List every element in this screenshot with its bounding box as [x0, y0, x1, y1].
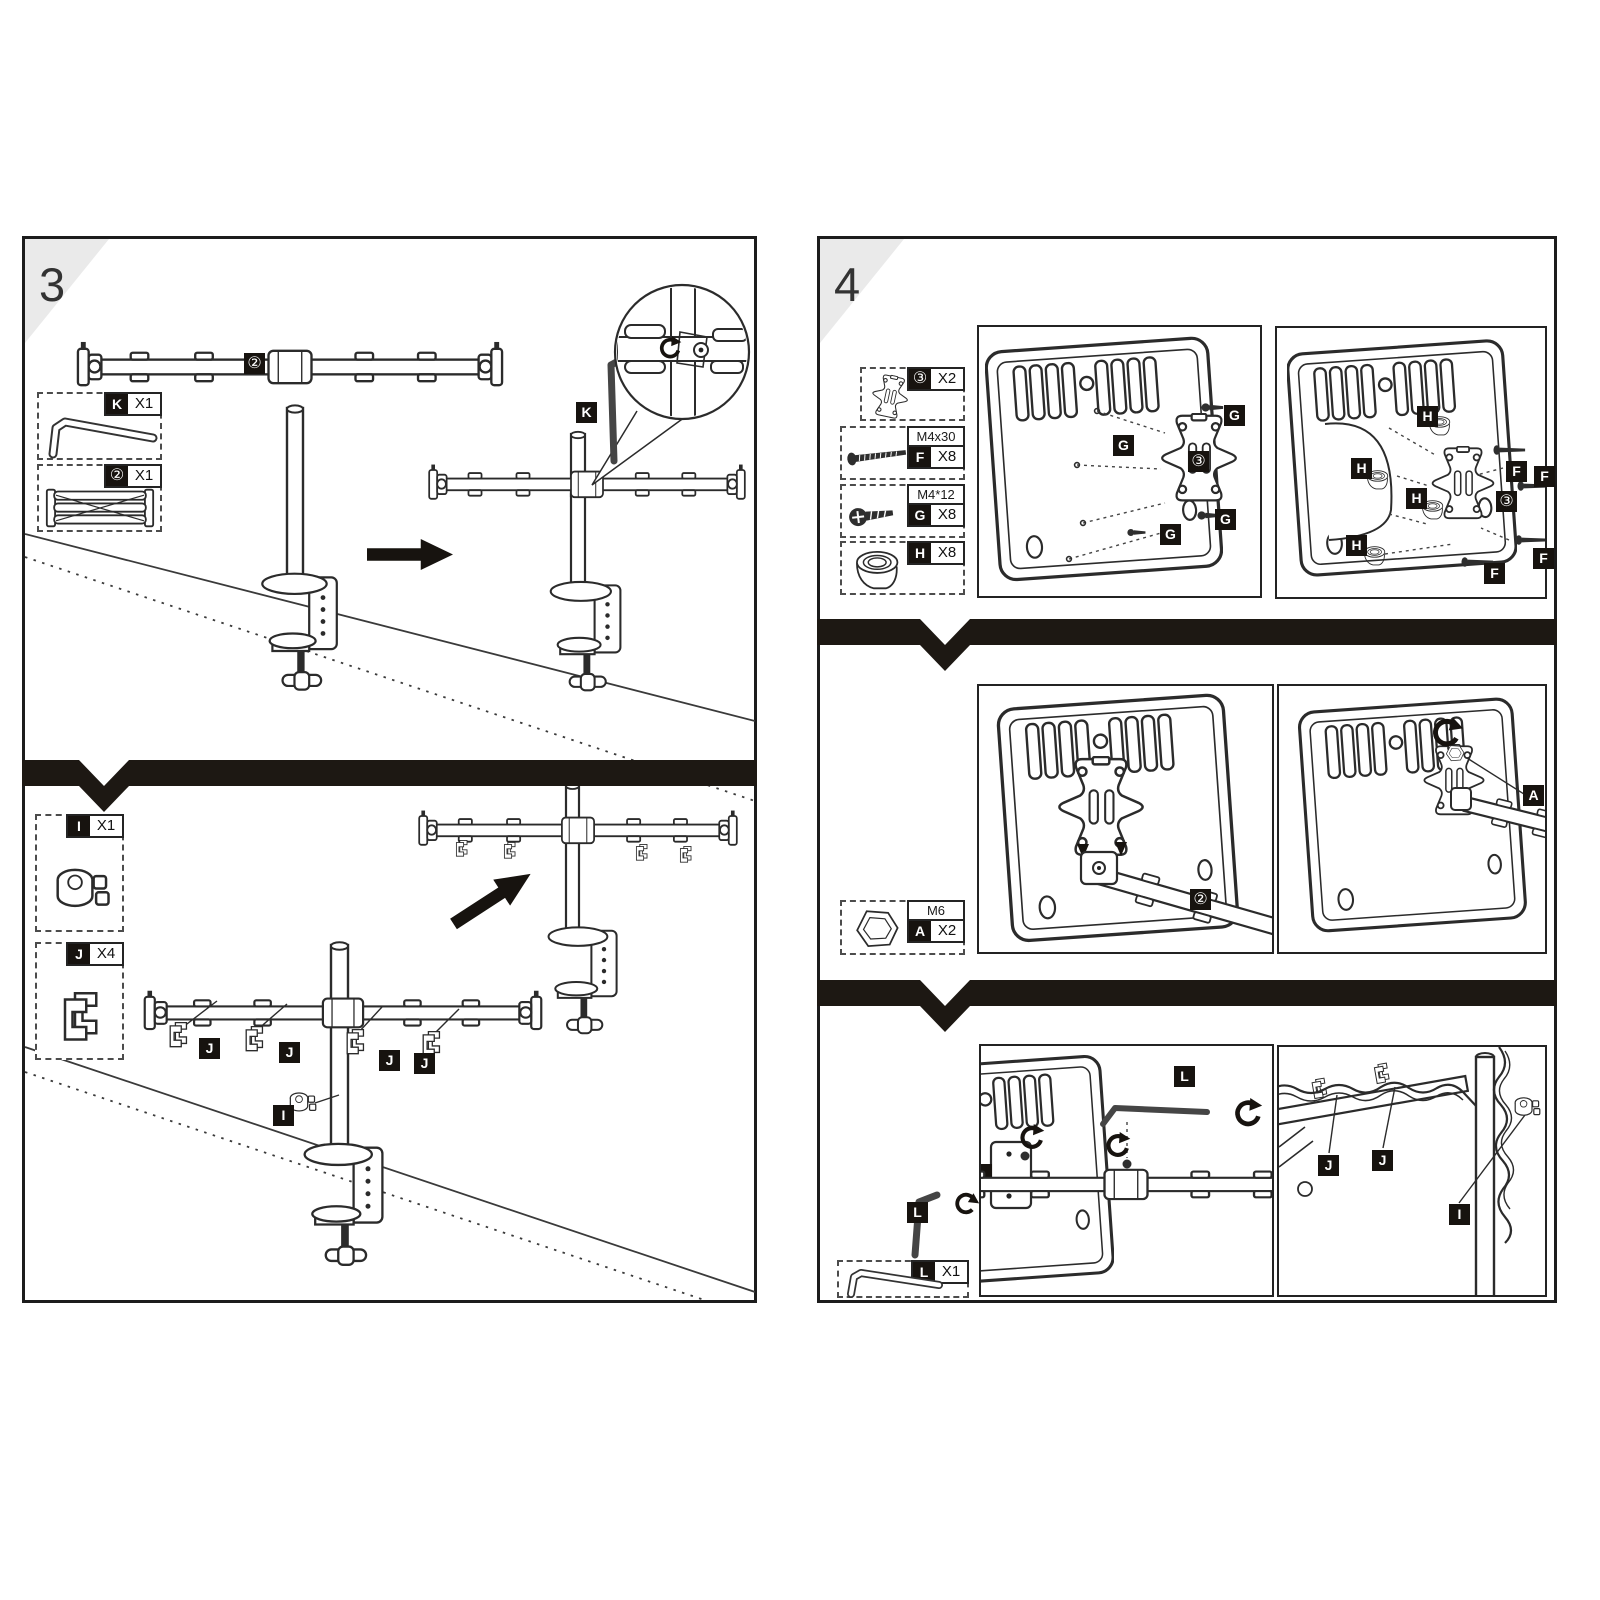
parts-box-l: L X1	[837, 1260, 969, 1298]
part-tag-a: M6 A X2	[907, 900, 965, 943]
figure-tighten-nut	[1277, 684, 1547, 954]
callout-screw-f: F	[1533, 548, 1554, 569]
callout-arm-assembly: ②	[244, 353, 265, 374]
section-divider	[817, 619, 1557, 673]
callout-screw-g: G	[1215, 509, 1236, 530]
callout-hex-key-l: L	[907, 1202, 928, 1223]
part-letter: A	[909, 921, 931, 941]
callout-spacer-h: H	[1406, 488, 1427, 509]
spacer-icon	[852, 547, 908, 595]
step-number: 4	[834, 257, 860, 312]
parts-box-h: H X8	[840, 541, 965, 595]
part-qty: X8	[931, 543, 963, 563]
callout-arm-assembly: ②	[1190, 889, 1211, 910]
callout-pole-clip: I	[273, 1105, 294, 1126]
part-qty: X1	[128, 394, 160, 414]
vesa-plate-icon	[866, 373, 914, 421]
part-qty: X1	[90, 816, 122, 836]
callout-spacer-h: H	[1346, 535, 1367, 556]
part-letter: I	[68, 816, 90, 836]
callout-cable-clip-2: J	[279, 1042, 300, 1063]
callout-screw-f: F	[1484, 563, 1505, 584]
parts-box-vesa: ③ X2	[860, 367, 965, 421]
callout-screw-f: F	[1534, 466, 1555, 487]
assembly-instruction-sheet: 3	[0, 0, 1600, 1600]
parts-box-arm: ② X1	[37, 464, 162, 532]
callout-cable-clip-1: J	[199, 1038, 220, 1059]
callout-spacer-h: H	[1417, 406, 1438, 427]
section-divider	[817, 980, 1557, 1034]
callout-nut-a: A	[1523, 785, 1544, 806]
nut-icon	[854, 908, 904, 954]
step-number: 3	[39, 257, 65, 312]
step-4-panel: 4	[817, 236, 1557, 1303]
part-letter: G	[909, 505, 931, 525]
parts-box-i: I X1	[35, 814, 124, 932]
callout-pole-clip-i: I	[1449, 1204, 1470, 1225]
figure-adjust-arm-tension	[979, 1044, 1274, 1297]
part-qty: X4	[90, 944, 122, 964]
part-qty: X1	[128, 466, 160, 486]
part-letter: H	[909, 543, 931, 563]
part-size: M4x30	[907, 426, 965, 445]
part-letter: ②	[106, 466, 128, 486]
part-tag-vesa: ③ X2	[907, 367, 965, 391]
callout-vesa-plate: ③	[1188, 451, 1209, 472]
callout-spacer-h: H	[1351, 458, 1372, 479]
part-letter: K	[106, 394, 128, 414]
step-3-panel: 3	[22, 236, 757, 1303]
parts-box-k: K X1	[37, 392, 162, 460]
part-qty: X8	[931, 505, 963, 525]
callout-vesa-plate: ③	[1496, 491, 1517, 512]
part-size: M6	[907, 900, 965, 919]
callout-hex-key: K	[576, 402, 597, 423]
folded-arm-icon	[45, 484, 157, 532]
figure-slide-arm-into-plate	[977, 684, 1274, 954]
part-qty: X8	[931, 447, 963, 467]
callout-cable-clip-j: J	[1318, 1155, 1339, 1176]
callout-cable-clip-j: J	[1372, 1150, 1393, 1171]
callout-cable-clip-4: J	[414, 1053, 435, 1074]
section-divider	[22, 760, 757, 814]
part-letter: F	[909, 447, 931, 467]
long-screw-icon	[844, 442, 912, 472]
parts-box-j: J X4	[35, 942, 124, 1060]
part-tag-h: H X8	[907, 541, 965, 565]
short-screw-icon	[846, 500, 908, 532]
callout-screw-g: G	[1224, 405, 1245, 426]
hex-key-icon	[41, 414, 161, 460]
callout-hex-key-l: L	[1174, 1066, 1195, 1087]
part-tag-k: K X1	[104, 392, 162, 416]
pole-clip-icon	[49, 862, 113, 918]
part-tag-i: I X1	[66, 814, 124, 838]
callout-screw-f: F	[1506, 461, 1527, 482]
part-qty: X2	[931, 921, 963, 941]
corner-decoration	[820, 239, 904, 343]
figure-attach-plate-flat	[977, 325, 1262, 598]
part-letter: J	[68, 944, 90, 964]
part-tag-g: M4*12 G X8	[907, 484, 965, 527]
callout-screw-g: G	[1113, 435, 1134, 456]
part-tag-j: J X4	[66, 942, 124, 966]
part-qty: X2	[931, 369, 963, 389]
part-size: M4*12	[907, 484, 965, 503]
part-tag-f: M4x30 F X8	[907, 426, 965, 469]
parts-box-g: M4*12 G X8	[840, 484, 965, 538]
hex-key-icon	[843, 1268, 947, 1298]
parts-box-a: M6 A X2	[840, 900, 965, 955]
cable-clip-icon	[55, 988, 109, 1046]
callout-screw-g: G	[1160, 524, 1181, 545]
callout-cable-clip-3: J	[379, 1050, 400, 1071]
parts-box-f: M4x30 F X8	[840, 426, 965, 480]
